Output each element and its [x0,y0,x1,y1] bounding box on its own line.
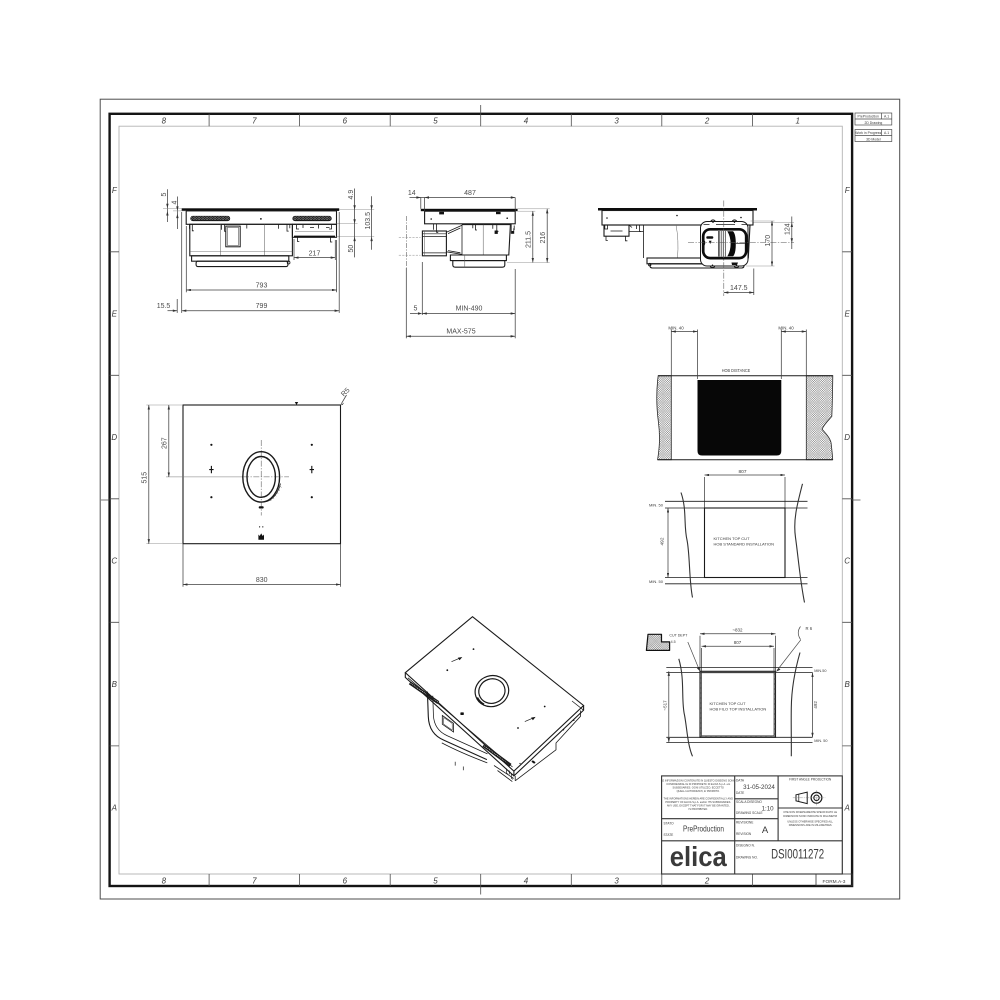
svg-text:170: 170 [765,235,772,247]
svg-text:FORM.A-3: FORM.A-3 [823,879,846,885]
svg-text:STATE: STATE [664,833,674,837]
svg-text:124: 124 [785,223,792,235]
svg-text:MIN. 50: MIN. 50 [814,739,827,743]
svg-text:8: 8 [162,116,167,125]
svg-text:14: 14 [408,190,416,197]
svg-text:211.5: 211.5 [526,231,533,248]
svg-text:CUT DEPT: CUT DEPT [669,634,688,638]
svg-text:IS PROHIBITED.: IS PROHIBITED. [689,807,709,811]
svg-text:MIN. 40: MIN. 40 [778,325,794,330]
svg-text:8: 8 [162,877,167,886]
svg-text:REVISIONE: REVISIONE [736,821,753,825]
svg-text:MIN-490: MIN-490 [456,306,483,313]
svg-text:MIN.50: MIN.50 [814,669,826,673]
svg-text:DATA: DATA [736,778,745,782]
svg-text:A.1: A.1 [884,131,889,135]
svg-text:807: 807 [734,640,742,645]
svg-text:LE INFORMAZIONI CONTENUTE IN Q: LE INFORMAZIONI CONTENUTE IN QUESTO DISE… [661,779,735,783]
svg-text:2D Drawing: 2D Drawing [865,121,883,125]
svg-text:MIN. 50: MIN. 50 [649,579,664,584]
svg-text:A: A [844,804,850,813]
svg-text:DRAWING NO.: DRAWING NO. [736,856,758,860]
svg-text:3D Model: 3D Model [866,137,881,141]
svg-text:REVISION: REVISION [736,832,752,836]
svg-text:1: 1 [795,116,799,125]
svg-text:D: D [844,433,850,442]
svg-text:THE INFORMATIONS HEREIN ARE CO: THE INFORMATIONS HEREIN ARE CONFIDENTIAL… [663,797,733,801]
svg-text:QUELLI AUTORIZZATI, E' PROIBIT: QUELLI AUTORIZZATI, E' PROIBITO. [677,789,721,793]
svg-text:A: A [762,825,769,836]
svg-text:5: 5 [161,193,168,197]
svg-text:807: 807 [738,469,746,475]
svg-text:217: 217 [309,250,321,257]
svg-text:6: 6 [343,116,348,125]
svg-text:UNLESS OTHERWISE SPECIFIED ALL: UNLESS OTHERWISE SPECIFIED ALL [787,819,833,823]
svg-text:6: 6 [343,877,348,886]
svg-text:147.5: 147.5 [730,285,748,292]
svg-text:PROPERTY OF ELICA S.p.A. and/o: PROPERTY OF ELICA S.p.A. and/or ITS SUBS… [665,800,731,804]
svg-text:D: D [111,433,117,442]
svg-text:MAX-575: MAX-575 [446,328,475,335]
svg-text:2: 2 [704,116,710,125]
svg-text:15.5: 15.5 [157,303,171,310]
svg-text:KITCHEN TOP CUT: KITCHEN TOP CUT [714,536,751,541]
svg-text:3: 3 [614,877,619,886]
svg-text:~832: ~832 [732,628,743,633]
svg-text:5: 5 [433,116,438,125]
svg-text:PreProduction: PreProduction [857,115,879,119]
svg-text:HOB FILO TOP INSTALLATION: HOB FILO TOP INSTALLATION [710,706,767,711]
svg-text:E: E [112,310,118,319]
svg-text:4: 4 [524,116,529,125]
svg-text:103.5: 103.5 [365,212,372,230]
svg-text:PreProduction: PreProduction [683,825,724,834]
svg-text:7: 7 [252,877,257,886]
svg-text:A: A [111,804,117,813]
svg-text:C: C [111,557,117,566]
svg-text:4: 4 [171,201,178,205]
svg-text:ANY USE, EXCEPT THAT FOR IT MA: ANY USE, EXCEPT THAT FOR IT MAY BE GRANT… [667,804,730,808]
svg-text:3: 3 [614,116,619,125]
svg-text:DISEGNO N.: DISEGNO N. [736,844,755,848]
svg-text:MIN. 40: MIN. 40 [668,325,684,330]
svg-text:C: C [844,557,850,566]
svg-text:1:10: 1:10 [762,805,775,812]
svg-text:7: 7 [252,116,257,125]
svg-text:4.5: 4.5 [671,640,676,644]
svg-text:830: 830 [256,577,268,584]
svg-text:elica: elica [670,841,728,872]
svg-text:5: 5 [433,877,438,886]
svg-text:STATO: STATO [664,822,675,826]
svg-text:5: 5 [414,306,418,313]
svg-text:50: 50 [348,245,355,253]
svg-text:R 6: R 6 [806,626,813,631]
svg-text:DRAWING SCALE: DRAWING SCALE [736,811,763,815]
svg-text:492: 492 [813,701,818,709]
svg-text:487: 487 [464,190,476,197]
svg-text:31-05-2024: 31-05-2024 [743,784,775,791]
svg-text:A.1: A.1 [884,115,889,119]
svg-text:4: 4 [524,877,529,886]
svg-text:HOB DISTANCE: HOB DISTANCE [722,368,751,373]
svg-text:DIMENSIONI SONO INDICATE IN MI: DIMENSIONI SONO INDICATE IN MILLIMETRI [783,814,837,818]
svg-text:SCALA DISEGNO: SCALA DISEGNO [736,800,762,804]
svg-text:799: 799 [256,303,268,310]
svg-text:DATE: DATE [736,791,744,795]
svg-text:MIN. 50: MIN. 50 [649,503,664,508]
svg-text:SUBSIDIARIES. OGNI UTILIZZO, E: SUBSIDIARIES. OGNI UTILIZZO, ECCETTO [673,786,724,790]
svg-text:DSI0011272: DSI0011272 [771,847,824,862]
svg-text:HOB STANDARD INSTALLATION: HOB STANDARD INSTALLATION [714,541,775,546]
svg-text:2: 2 [704,877,710,886]
svg-text:E: E [845,310,851,319]
svg-text:492: 492 [660,537,666,545]
svg-text:DIMENSIONS ARE IN MILLIMETRES: DIMENSIONS ARE IN MILLIMETRES [789,823,832,827]
svg-text:KITCHEN TOP CUT: KITCHEN TOP CUT [710,701,747,706]
svg-text:267: 267 [162,437,169,449]
svg-text:Work in Progress: Work in Progress [855,131,881,135]
svg-text:FIRST ANGLE PROJECTION: FIRST ANGLE PROJECTION [789,778,832,782]
svg-text:B: B [845,680,851,689]
svg-text:CONFIDENZIALI E DI PROPRIETA': CONFIDENZIALI E DI PROPRIETA' DI ELICA S… [666,782,730,786]
svg-text:CHE NON DIVERSAMENTE SPECIFICA: CHE NON DIVERSAMENTE SPECIFICATO LE [783,810,837,814]
svg-text:B: B [112,680,118,689]
svg-text:793: 793 [256,283,268,290]
svg-text:~517: ~517 [663,700,668,711]
svg-text:4.9: 4.9 [348,190,355,200]
svg-text:515: 515 [142,472,149,484]
svg-text:216: 216 [540,232,547,244]
